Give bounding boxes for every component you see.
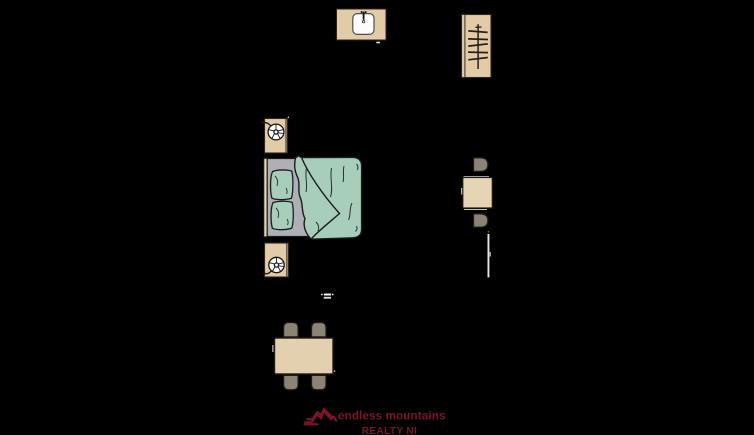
svg-text:endless mountains: endless mountains [338,411,446,423]
svg-text:REALTY NI: REALTY NI [362,426,417,435]
